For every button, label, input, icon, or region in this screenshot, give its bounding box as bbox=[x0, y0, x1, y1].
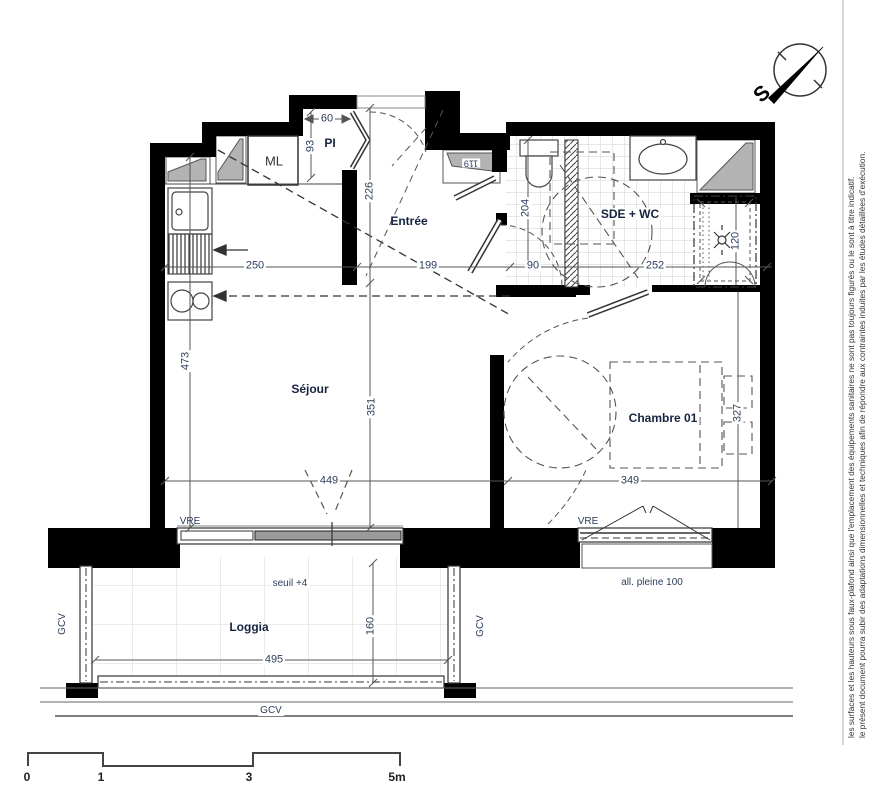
dim-204: 204 bbox=[521, 197, 532, 219]
room-label-ml: ML bbox=[263, 155, 285, 168]
scale-tick-3: 3 bbox=[244, 771, 255, 783]
dim-199: 199 bbox=[417, 261, 439, 272]
ground-lines bbox=[40, 688, 793, 716]
dim-495: 495 bbox=[263, 655, 285, 666]
turning-circle-chambre bbox=[504, 356, 616, 468]
floor-plan: PI ML Entrée Séjour SDE + WC Chambre 01 … bbox=[0, 0, 877, 800]
disclaimer-line-2: les surfaces et les hauteurs sous faux-p… bbox=[846, 8, 856, 738]
scale-bar bbox=[28, 753, 400, 766]
room-label-pi: PI bbox=[322, 137, 337, 149]
dim-60: 60 bbox=[319, 114, 335, 125]
dim-120: 120 bbox=[731, 230, 742, 252]
chambre-door bbox=[508, 292, 648, 524]
compass-icon bbox=[768, 44, 826, 104]
dim-351: 351 bbox=[367, 396, 378, 418]
pi-folding-door bbox=[352, 112, 368, 168]
annotation-allege: all. pleine 100 bbox=[619, 578, 685, 588]
bathroom-sink-icon bbox=[630, 136, 696, 180]
dim-226: 226 bbox=[365, 180, 376, 202]
annotation-seuil: seuil +4 bbox=[271, 579, 310, 589]
partition-hatched bbox=[565, 140, 578, 287]
dim-349: 349 bbox=[619, 476, 641, 487]
room-label-entree: Entrée bbox=[388, 215, 429, 227]
dim-327: 327 bbox=[733, 402, 744, 424]
dim-90: 90 bbox=[525, 261, 541, 272]
dim-252: 252 bbox=[644, 261, 666, 272]
annotation-gcv-right: GCV bbox=[476, 613, 486, 639]
dim-93: 93 bbox=[306, 138, 317, 154]
dim-473: 473 bbox=[181, 350, 192, 372]
dim-250: 250 bbox=[244, 261, 266, 272]
annotation-vre-chambre: VRE bbox=[576, 517, 601, 527]
annotation-vre-sejour: VRE bbox=[178, 517, 203, 527]
room-label-chambre: Chambre 01 bbox=[627, 412, 700, 424]
dim-119: 119 bbox=[462, 159, 480, 168]
scale-tick-1: 1 bbox=[96, 771, 107, 783]
scale-tick-0: 0 bbox=[22, 771, 33, 783]
scale-tick-5m: 5m bbox=[386, 771, 407, 783]
plan-drawing bbox=[0, 0, 877, 800]
room-label-sejour: Séjour bbox=[289, 383, 330, 395]
dim-160: 160 bbox=[366, 615, 377, 637]
room-label-loggia: Loggia bbox=[227, 621, 270, 633]
entree-dashed-lines bbox=[366, 110, 443, 276]
annotation-gcv-bottom: GCV bbox=[258, 706, 284, 716]
dim-449: 449 bbox=[318, 476, 340, 487]
shower-icon bbox=[694, 196, 756, 287]
annotation-gcv-left: GCV bbox=[58, 611, 68, 637]
disclaimer-line-1: le présent document pourra subir des ada… bbox=[857, 8, 867, 738]
room-label-sde-wc: SDE + WC bbox=[599, 208, 661, 220]
